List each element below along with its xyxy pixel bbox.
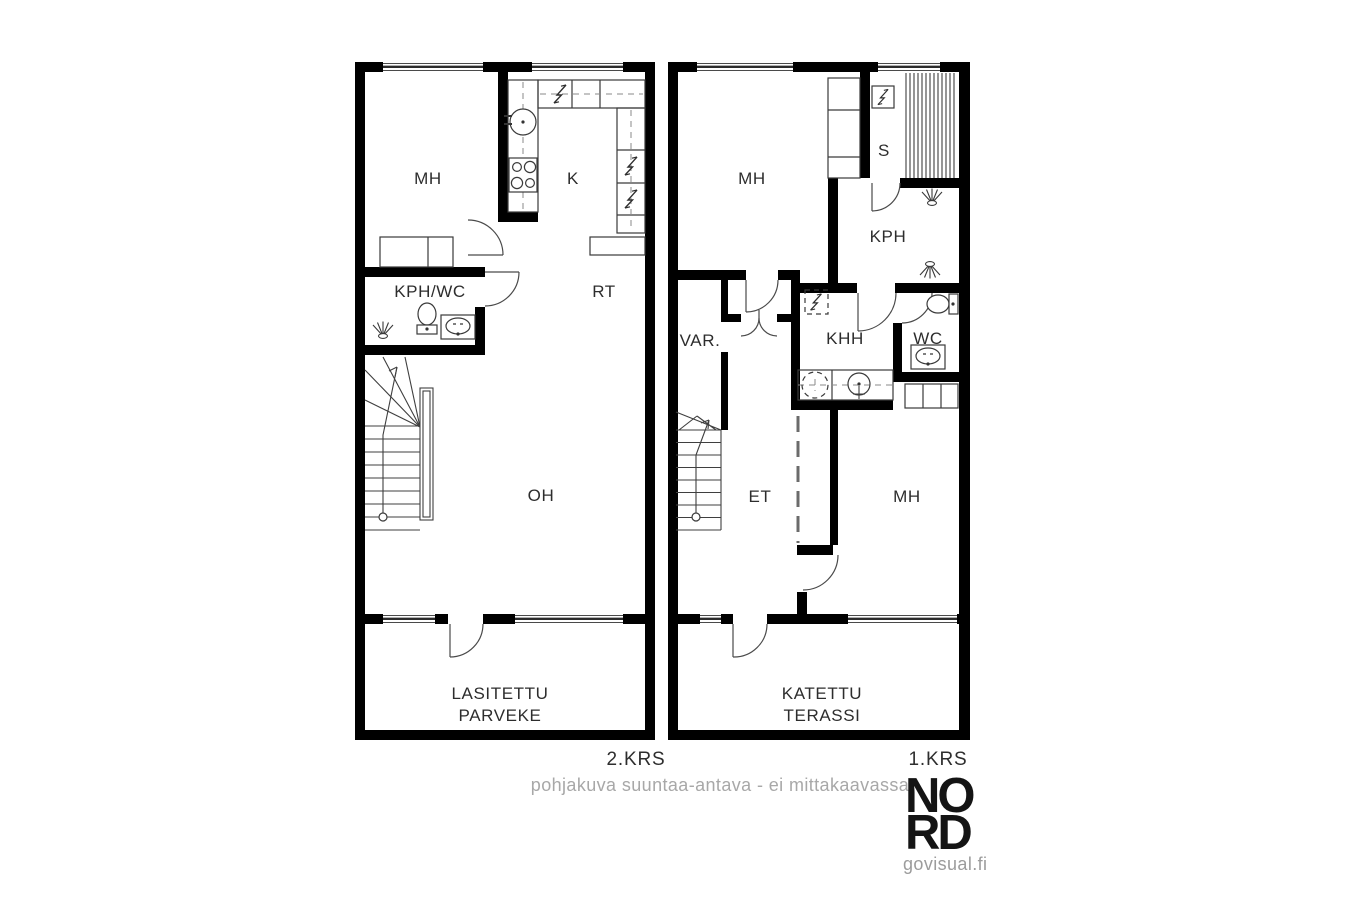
floorplan-canvas: MH K RT KPH/WC OH LASITETTU PARVEKE 2.KR… (0, 0, 1366, 911)
window (697, 62, 793, 72)
window (700, 614, 721, 624)
plan-1krs: MH S KPH VAR. KHH WC ET MH KATETTU TERAS… (668, 62, 970, 770)
room-label-balcony-2: PARVEKE (459, 706, 542, 725)
wardrobe (828, 78, 860, 178)
kitchen-sink-icon (504, 109, 536, 135)
room-label-wc: WC (913, 329, 943, 348)
window (848, 614, 957, 624)
room-label-oh: OH (528, 486, 555, 505)
window (878, 62, 940, 72)
room-label-s: S (878, 141, 890, 160)
room-label-balcony-1: LASITETTU (451, 684, 548, 703)
floor-label-1krs: 1.KRS (909, 749, 968, 770)
window (383, 62, 483, 72)
nord-logo: NO RD govisual.fi (903, 769, 987, 874)
door-arc (803, 555, 838, 590)
room-label-rt: RT (592, 282, 616, 301)
bathroom-fixtures-2krs (373, 303, 475, 339)
rt-counter (590, 237, 645, 255)
utility-sink-icon (848, 373, 870, 399)
appliance-icon (805, 290, 828, 314)
disclaimer-note: pohjakuva suuntaa-antava - ei mittakaava… (531, 775, 910, 795)
door-arc (746, 280, 778, 312)
room-label-mh-top: MH (738, 169, 766, 188)
door-arc (448, 614, 483, 657)
wardrobe (380, 237, 453, 267)
plan-2krs: MH K RT KPH/WC OH LASITETTU PARVEKE 2.KR… (355, 62, 665, 770)
stove-icon (509, 158, 537, 192)
door-arc (733, 614, 767, 657)
room-label-khh: KHH (826, 329, 864, 348)
logo-line-2: RD (905, 806, 971, 860)
floor-label-2krs: 2.KRS (607, 749, 666, 770)
walls-1krs (668, 62, 970, 740)
sauna-heater-icon (872, 86, 894, 108)
logo-website: govisual.fi (903, 854, 987, 874)
door-arc (468, 220, 503, 255)
room-label-k: K (567, 169, 579, 188)
room-label-mh-bottom: MH (893, 487, 921, 506)
room-label-kph: KPH (870, 227, 907, 246)
room-label-var: VAR. (680, 331, 721, 350)
stairs-direction-arrow (379, 367, 397, 521)
room-label-terrace-1: KATETTU (782, 684, 862, 703)
door-arc (872, 183, 900, 211)
double-door-arcs (741, 310, 777, 336)
window (532, 62, 623, 72)
kitchen-fixtures (504, 80, 645, 255)
stairs-2krs (365, 357, 433, 530)
window (383, 614, 435, 624)
door-arc (858, 293, 896, 331)
stairs-1krs (676, 412, 721, 530)
walls-2krs (355, 62, 655, 740)
room-label-kph-wc: KPH/WC (394, 282, 466, 301)
room-label-terrace-2: TERASSI (784, 706, 861, 725)
door-arc (485, 272, 519, 306)
stairs-direction-arrow (692, 420, 709, 521)
sauna-benches (872, 73, 954, 178)
wardrobe (905, 384, 958, 408)
window (515, 614, 623, 624)
room-label-mh-2krs: MH (414, 169, 442, 188)
room-label-et: ET (749, 487, 772, 506)
